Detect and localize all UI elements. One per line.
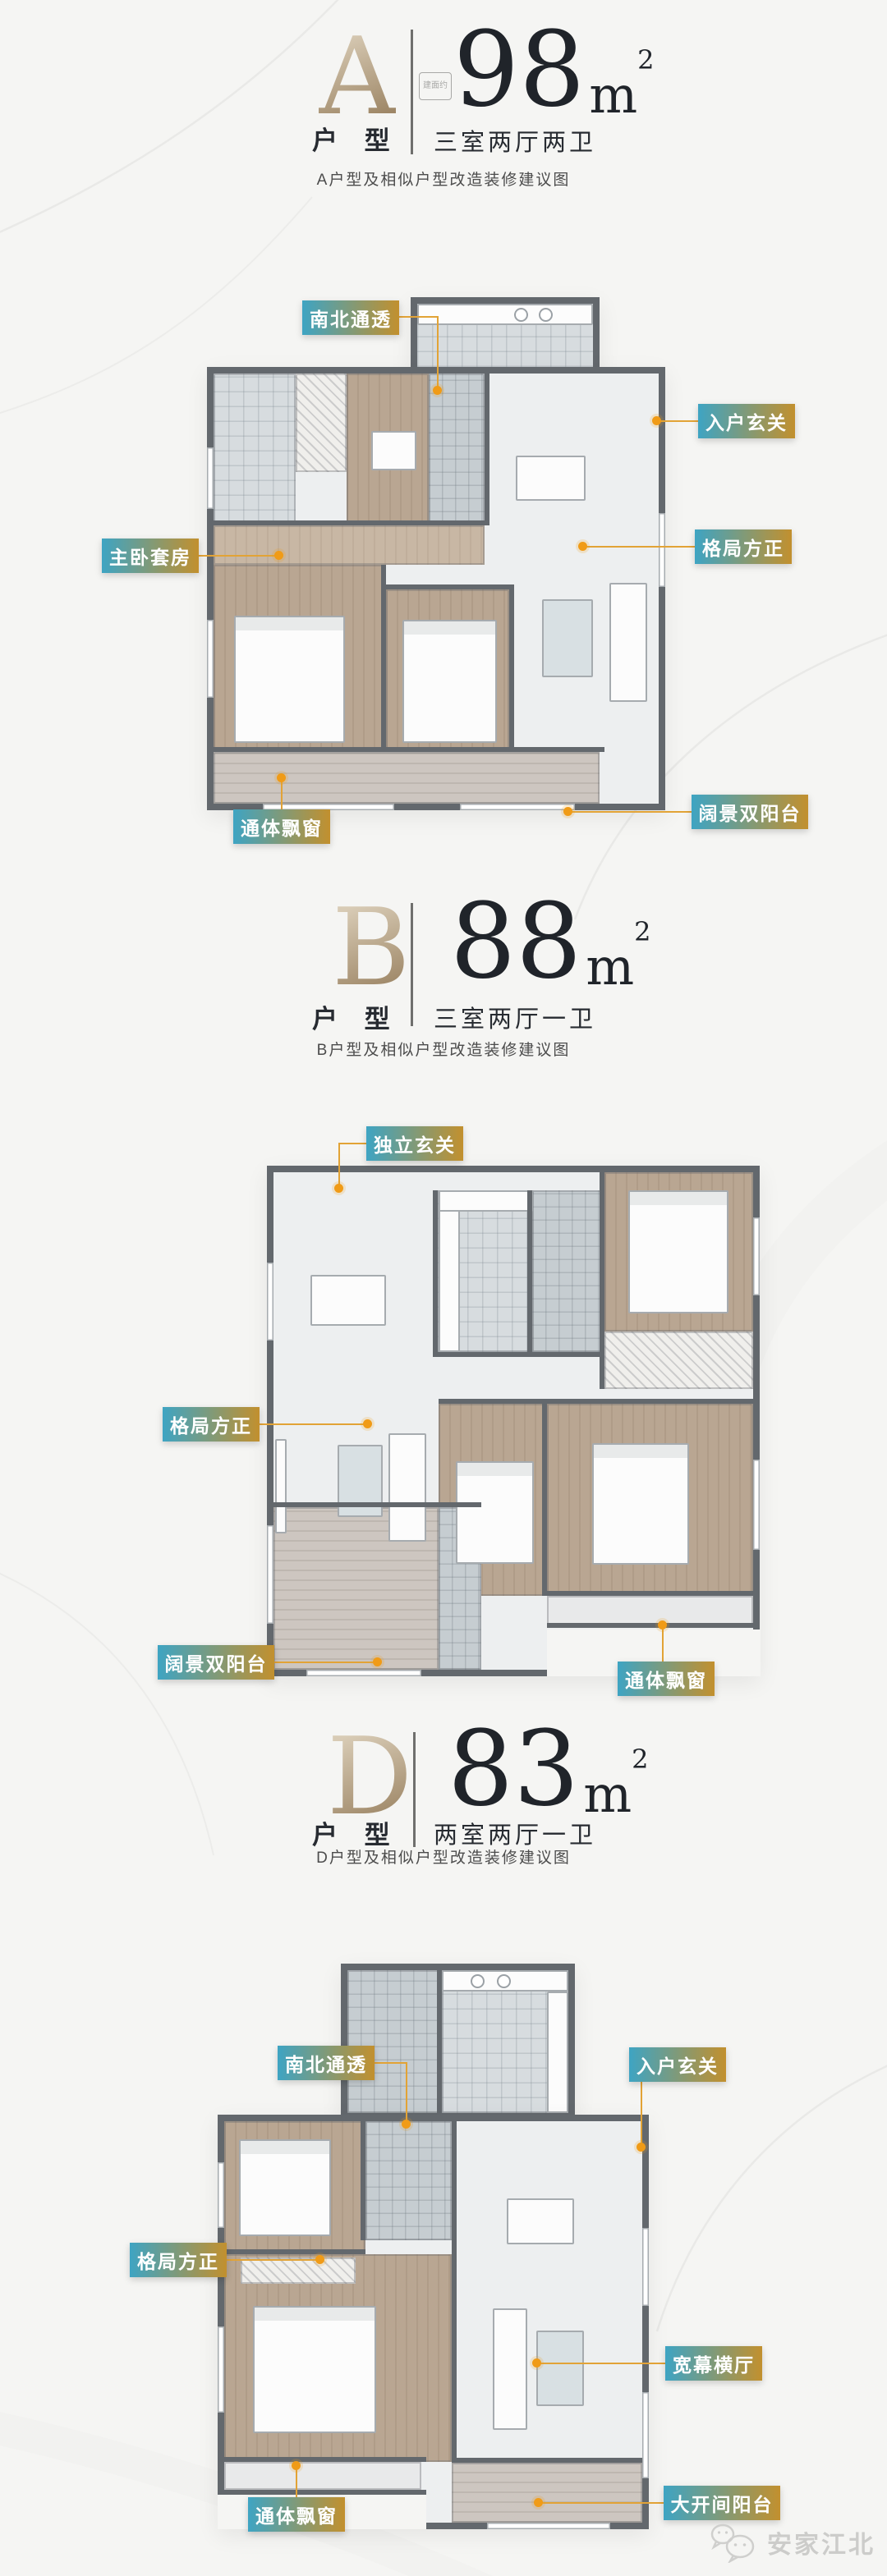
tag-square-layout: 格局方正 [163,1407,260,1442]
window [642,2228,649,2306]
leader-dot [652,416,661,425]
window [267,1263,273,1341]
leader-line [338,1143,366,1144]
area-unit: m [589,75,637,116]
tv-cabinet [275,1439,287,1533]
area-unit: m [583,1774,632,1815]
tag-entry-foyer: 入户玄关 [629,2047,726,2082]
floor-plan-d-kitchen-block [341,1964,575,2120]
window [753,1460,760,1550]
tag-text: 通体飘窗 [255,2500,338,2528]
floor-plan-b [267,1166,760,1676]
tag-text: 阔景双阳台 [699,798,802,826]
tag-text: 独立玄关 [374,1130,456,1157]
bed [628,1190,728,1313]
unit-letter-b: B [332,894,411,1001]
area-d: 83m2 [448,1724,649,1815]
wall [433,1190,438,1352]
corridor [214,525,485,565]
wall [381,565,386,752]
tag-north-south-airflow: 南北通透 [278,2046,375,2080]
leader-dot [532,2358,541,2367]
area-a: 98m2 [453,25,655,116]
room-bathroom-2 [365,2121,452,2240]
area-number: 83 [448,1724,579,1815]
sofa [493,2308,527,2430]
sofa [388,1433,426,1542]
leader-dot [315,2255,324,2264]
tag-text: 入户玄关 [705,407,788,435]
dining-table [507,2198,574,2244]
bed [456,1461,534,1564]
watermark: 安家江北 [708,2522,876,2563]
leader-dot [402,2120,411,2129]
room-spec-b: 三室两厅一卫 [434,1000,596,1034]
room-bathroom [214,374,296,525]
leader-line [227,2259,319,2261]
floor-plan-d [218,2115,649,2529]
window [460,804,575,810]
header-divider-a [411,30,413,154]
window [267,1525,273,1624]
wall [509,584,514,752]
leader-dot [658,1620,667,1629]
tag-text: 大开间阳台 [671,2489,774,2517]
kitchen-counter [439,1190,533,1212]
tag-full-bay-window: 通体飘窗 [248,2497,345,2532]
leader-dot [373,1657,382,1666]
wall [439,1399,753,1404]
unit-letter-a: A [319,23,396,130]
leader-dot [334,1184,343,1193]
tag-text: 通体飘窗 [241,813,323,841]
kitchen-counter [547,1992,568,2113]
window [487,2523,610,2529]
bed [402,620,497,743]
stove-burner [497,1974,511,1988]
tag-full-bay-window: 通体飘窗 [618,1662,715,1696]
leader-line [537,2363,665,2364]
kitchen-counter [417,304,593,325]
leader-dot [433,386,442,395]
wall [224,2249,365,2254]
area-number: 98 [453,25,585,116]
leader-line [568,811,692,813]
area-exponent: 2 [637,47,654,73]
leader-line [662,1627,664,1662]
tag-large-open-balcony: 大开间阳台 [664,2486,780,2520]
dining-table [310,1275,386,1326]
window [753,1217,760,1295]
wall [600,1172,604,1389]
leader-line [375,2062,407,2064]
leader-line [437,316,439,387]
tag-widescreen-hall: 宽幕横厅 [665,2346,762,2381]
wall [547,1591,753,1596]
leader-dot [637,2143,646,2152]
leader-dot [274,551,283,560]
leader-line [641,2082,642,2144]
header-divider-d [413,1732,416,1847]
tag-north-south-airflow: 南北通透 [302,300,399,335]
area-exponent: 2 [632,1746,648,1772]
tag-text: 格局方正 [170,1410,252,1438]
tag-master-suite: 主卧套房 [102,539,199,573]
area-number: 88 [450,896,581,988]
wall [527,1190,532,1352]
wardrobe [241,2257,356,2284]
wall [214,747,604,752]
area-unit: m [586,947,634,988]
sofa [609,583,647,702]
tag-text: 主卧套房 [109,542,191,570]
stove-burner [514,308,528,322]
room-bathroom-2 [429,374,485,525]
tag-text: 格局方正 [702,533,784,561]
area-badge-a: 建面约 [419,72,452,100]
wardrobe [296,374,347,472]
tag-text: 阔景双阳台 [165,1648,268,1676]
watermark-text: 安家江北 [767,2524,876,2560]
wall [542,1404,547,1596]
wall [214,520,485,525]
leader-line [406,2062,407,2121]
leader-dot [363,1419,372,1428]
tag-independent-foyer: 独立玄关 [366,1126,463,1161]
desk [371,431,416,470]
window [218,2162,224,2228]
leader-line [296,2468,297,2497]
wall [452,2121,457,2462]
tag-full-bay-window: 通体飘窗 [233,809,330,844]
bed [239,2139,331,2236]
section-subtitle-a: A户型及相似户型改造装修建议图 [0,167,887,190]
leader-line [338,1143,340,1185]
room-balcony [214,752,600,804]
leader-dot [578,542,587,551]
window [218,2326,224,2413]
kitchen-counter [439,1190,460,1352]
leader-dot [534,2498,543,2507]
leader-dot [292,2461,301,2470]
leader-dot [277,773,286,782]
window [659,513,665,587]
bay-window-strip [224,2462,421,2490]
dining-table [516,456,586,501]
wall [547,1623,760,1628]
floor-plan-a-kitchen-block [411,297,600,374]
room-bathroom [347,1970,442,2113]
tag-text: 入户玄关 [637,2051,719,2079]
tag-text: 格局方正 [137,2246,219,2274]
tag-text: 通体飘窗 [625,1665,707,1693]
window [207,620,214,698]
leader-line [260,1423,366,1425]
leader-dot [563,807,572,816]
coffee-table [536,2331,584,2406]
leader-line [274,1662,376,1663]
leader-line [539,2502,664,2504]
stove-burner [539,308,553,322]
tag-text: 南北通透 [285,2049,367,2077]
wall [437,1970,442,2113]
floor-plan-poster: A 户 型 建面约 98m2 三室两厅两卫 A户型及相似户型改造装修建议图 [0,0,887,2576]
room-bathroom [532,1190,604,1352]
coffee-table [542,599,593,677]
room-spec-a: 三室两厅两卫 [434,123,596,158]
unit-caption-a: 户 型 [312,120,400,157]
tag-entry-foyer: 入户玄关 [698,404,795,438]
window [207,447,214,509]
tag-text: 南北通透 [310,304,392,332]
leader-line [199,555,278,557]
unit-caption-b: 户 型 [312,998,400,1035]
floor-plan-a [207,367,665,810]
wall [433,1352,604,1357]
wall [452,2458,642,2463]
tag-text: 宽幕横厅 [673,2349,755,2377]
wall [224,2457,426,2462]
wall [273,1502,481,1507]
section-subtitle-b: B户型及相似户型改造装修建议图 [0,1038,887,1060]
tag-square-layout: 格局方正 [130,2243,227,2277]
leader-line [399,316,439,318]
header-divider-b [411,903,413,1026]
bed [253,2306,376,2433]
window [642,2392,649,2478]
wall [386,584,514,589]
room-balcony [452,2463,642,2523]
wall [361,2121,365,2240]
section-subtitle-d: D户型及相似户型改造装修建议图 [0,1845,887,1868]
tag-wide-view-double-balcony: 阔景双阳台 [692,795,808,829]
leader-line [657,420,698,422]
bed [234,616,345,743]
tag-wide-view-double-balcony: 阔景双阳台 [158,1645,274,1680]
wall [485,374,489,525]
stove-burner [471,1974,485,1988]
bed [592,1443,689,1565]
leader-line [281,780,283,809]
wardrobe [604,1332,753,1389]
tag-square-layout: 格局方正 [695,529,792,564]
chat-bubbles-icon [708,2522,759,2563]
window [306,1670,421,1676]
area-b: 88m2 [450,896,651,988]
leader-line [583,546,695,548]
area-exponent: 2 [634,919,650,945]
